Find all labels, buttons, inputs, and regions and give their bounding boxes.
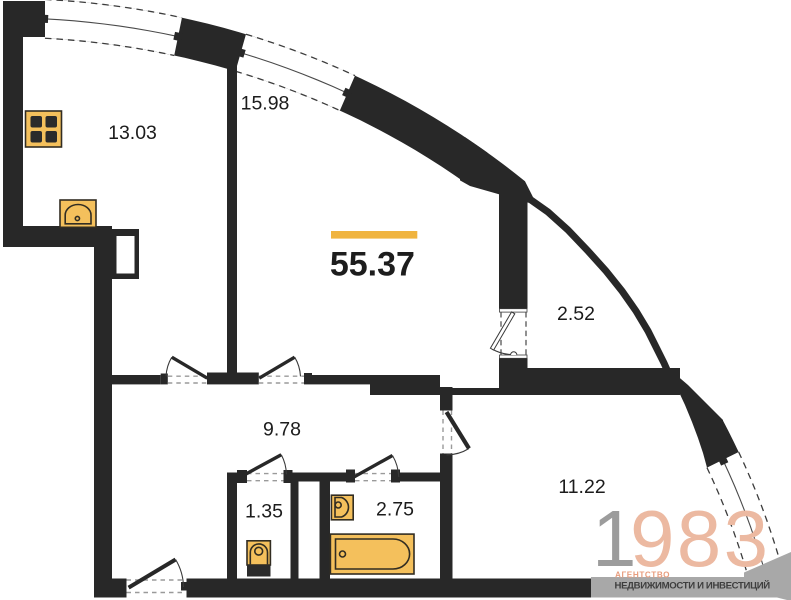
- svg-text:9.78: 9.78: [263, 418, 301, 440]
- svg-text:11.22: 11.22: [558, 476, 605, 498]
- svg-text:13.03: 13.03: [108, 122, 157, 144]
- svg-text:15.98: 15.98: [241, 92, 290, 114]
- svg-text:2.52: 2.52: [557, 303, 595, 325]
- svg-text:1.35: 1.35: [245, 500, 283, 522]
- svg-text:НЕДВИЖИМОСТИ И ИНВЕСТИЦИЙ: НЕДВИЖИМОСТИ И ИНВЕСТИЦИЙ: [615, 579, 771, 591]
- svg-text:АГЕНТСТВО: АГЕНТСТВО: [615, 571, 670, 580]
- svg-text:2.75: 2.75: [376, 499, 414, 521]
- svg-text:55.37: 55.37: [330, 245, 415, 283]
